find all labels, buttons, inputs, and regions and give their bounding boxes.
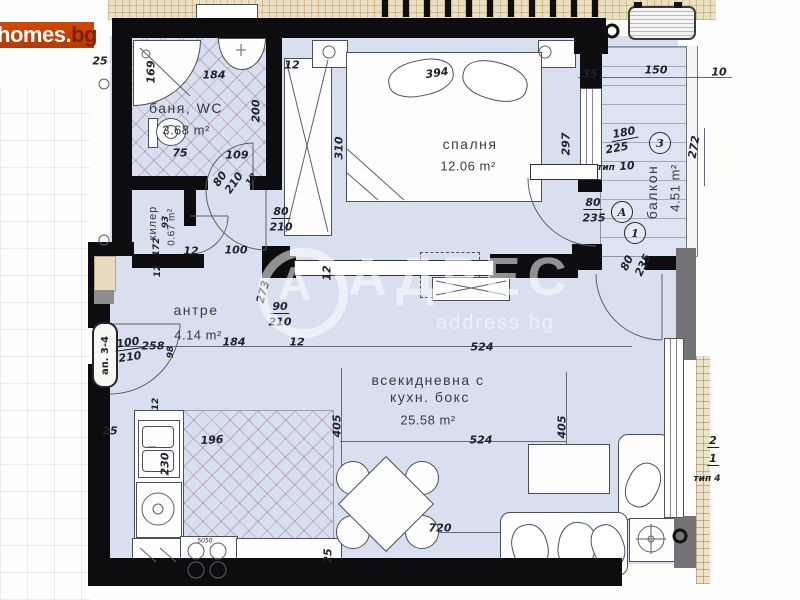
labels-layer: 2516918412394351501020075109802101293172…	[0, 0, 800, 600]
dimension-label: 394	[425, 65, 450, 81]
dimension-label: тип	[597, 163, 615, 173]
room-name-label: балкон	[644, 165, 660, 219]
dimension-label: 10	[711, 66, 726, 79]
dimension-label: 200	[250, 100, 263, 123]
dimension-label: 25	[102, 425, 117, 438]
dimension-label: 272	[686, 135, 703, 160]
floor-plan-page: ап. 3-4 25169184123943515010200751098021…	[0, 0, 800, 600]
dimension-label: 184	[203, 69, 226, 82]
dimension-label: 169	[145, 61, 158, 84]
dimension-label: 2	[707, 434, 719, 448]
dimension-label: 100	[225, 244, 248, 257]
dimension-label: 12	[151, 398, 161, 411]
room-name-label: спалня	[443, 136, 498, 152]
dimension-label: 150	[645, 64, 668, 77]
room-area-label: 0.67 m²	[167, 208, 178, 245]
dimension-label: 12	[183, 245, 198, 258]
logo-text-bg: bg	[71, 22, 97, 48]
dimension-label: 172	[152, 238, 162, 257]
dimension-label: 720	[429, 522, 452, 535]
dimension-label: 12	[244, 172, 259, 188]
room-area-label: 4.51 m²	[668, 164, 683, 212]
dimension-label: 25	[322, 548, 335, 563]
dimension-label: 235	[583, 212, 606, 225]
dimension-label: 10	[619, 159, 635, 173]
dimension-label: 75	[172, 147, 187, 160]
dimension-label: 405	[556, 416, 569, 439]
dimension-label: 524	[470, 434, 493, 447]
dimension-label: 12	[153, 265, 163, 278]
dimension-label: 35	[582, 68, 597, 81]
room-name-label: кухн. бокс	[390, 389, 470, 405]
dimension-label: 80	[271, 205, 290, 219]
dimension-label: 98	[166, 346, 176, 359]
dimension-label: 235	[632, 252, 653, 278]
circled-marker: A	[611, 201, 633, 223]
dimension-label: 210	[269, 316, 292, 329]
room-name-label: всекидневна с	[371, 372, 484, 388]
room-area-label: 12.06 m²	[440, 159, 495, 174]
dimension-label: 109	[226, 149, 249, 162]
dimension-label: 210	[118, 349, 143, 365]
dimension-label: 196	[200, 433, 224, 447]
dimension-label: 258	[142, 340, 165, 353]
dimension-label: 1	[707, 452, 719, 466]
dimension-label: 12	[289, 336, 304, 349]
dimension-label: 12	[284, 59, 299, 72]
room-name-label: баня, WC	[149, 100, 223, 116]
dimension-label: 90	[270, 300, 289, 314]
homes-bg-logo[interactable]: homes.bg	[0, 22, 94, 48]
dimension-label: 230	[159, 453, 172, 476]
dimension-label: 297	[560, 133, 573, 156]
room-area-label: 25.58 m²	[400, 413, 455, 428]
dimension-label: 5050	[197, 538, 212, 545]
dimension-label: 25	[92, 55, 107, 68]
dimension-label: 80	[583, 196, 602, 210]
dimension-label: 310	[333, 137, 346, 160]
dimension-label: 12	[321, 265, 334, 280]
dimension-label: 524	[471, 341, 494, 354]
room-area-label: 4.14 m²	[174, 328, 222, 343]
room-name-label: килер	[147, 206, 159, 241]
logo-text-homes: homes	[0, 22, 65, 48]
dimension-label: 184	[223, 336, 246, 349]
dimension-label: 210	[270, 221, 293, 234]
room-name-label: антре	[173, 302, 218, 318]
circled-marker: 1	[624, 222, 646, 244]
circled-marker: 3	[649, 132, 671, 154]
dimension-label: тип 4	[693, 474, 720, 484]
dimension-label: 225	[605, 140, 630, 157]
dimension-label: 405	[331, 415, 344, 438]
room-area-label: 3.68 m²	[162, 123, 210, 138]
